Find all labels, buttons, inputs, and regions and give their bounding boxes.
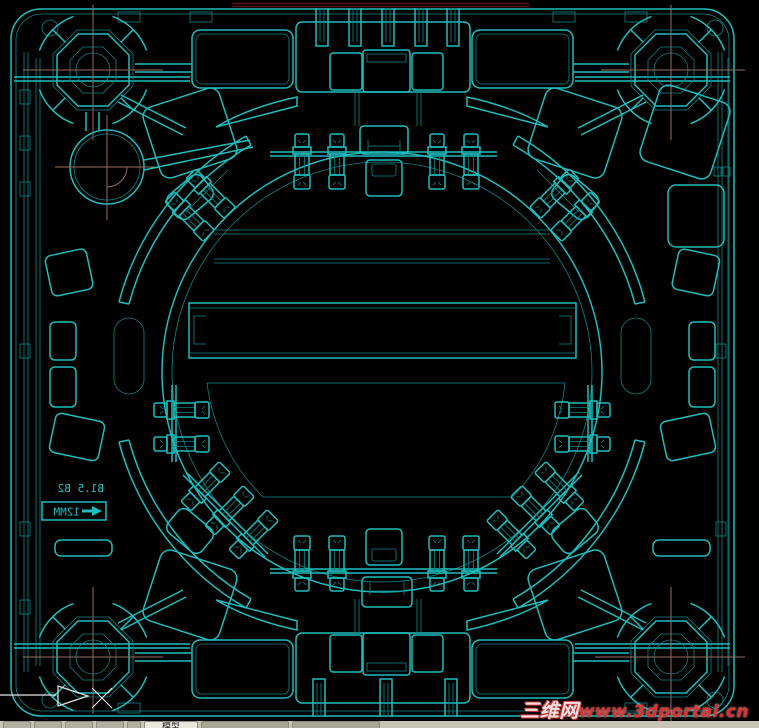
guide-bushing-circle <box>55 115 160 220</box>
taskbar-button[interactable] <box>127 721 141 728</box>
sprue-assembly-top <box>192 4 573 127</box>
dimension-label-12mm: 12MM <box>42 502 106 520</box>
taskbar-button[interactable] <box>34 721 62 728</box>
plate-outline <box>11 9 734 716</box>
annotation-notes: B1.5 B2 12MM <box>42 482 106 520</box>
leaf-slivers <box>216 97 548 630</box>
center-ring <box>162 152 602 592</box>
curved-rib-bands <box>119 136 645 608</box>
taskbar-button[interactable] <box>3 721 31 728</box>
layout-tab[interactable] <box>292 721 380 728</box>
cad-viewport: B1.5 B2 12MM 模型 三维网www.3dportal.cn <box>0 0 759 728</box>
taskbar: 模型 <box>0 721 759 728</box>
cad-canvas: B1.5 B2 12MM <box>0 0 759 728</box>
cavity-interior <box>189 230 576 497</box>
taskbar-button[interactable] <box>96 721 124 728</box>
model-tab[interactable]: 模型 <box>144 721 198 728</box>
note-b-values: B1.5 B2 <box>58 482 104 495</box>
svg-text:12MM: 12MM <box>53 506 80 519</box>
rail-ticks <box>20 12 730 713</box>
taskbar-button[interactable] <box>65 721 93 728</box>
layout-tab[interactable] <box>201 721 289 728</box>
clamp-stations <box>154 126 610 607</box>
cavity-rectangle <box>189 303 576 358</box>
cavity-bowl <box>207 383 565 497</box>
